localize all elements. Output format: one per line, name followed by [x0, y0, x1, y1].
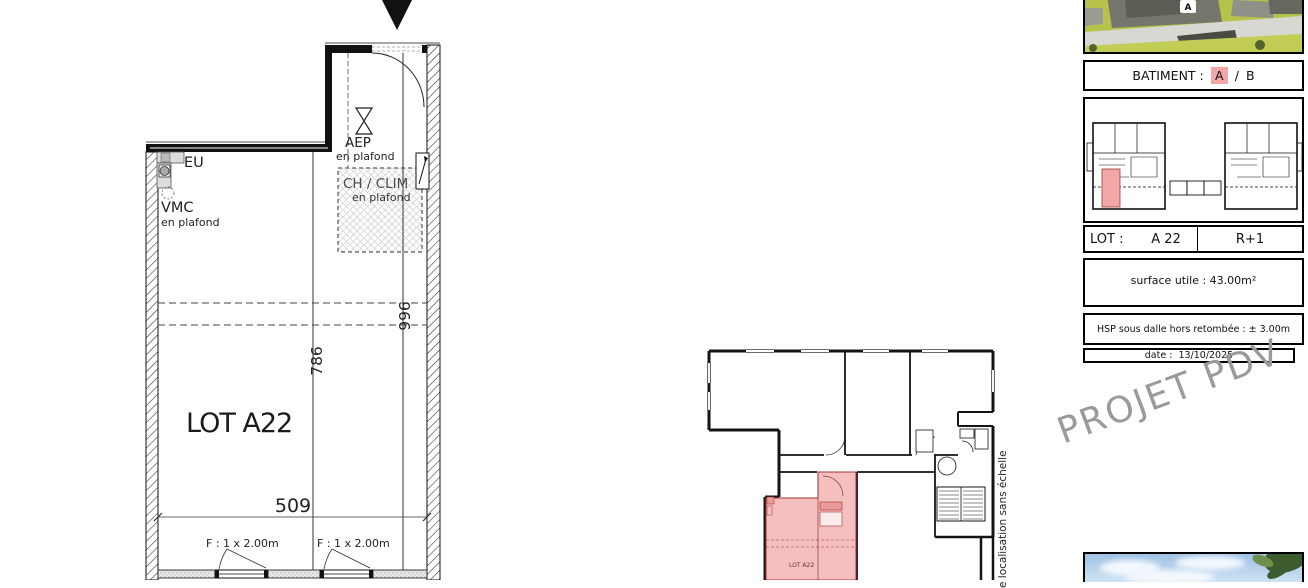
- entry-door-arc: [372, 53, 424, 107]
- batiment-row: BATIMENT : A / B: [1083, 60, 1304, 91]
- window-label-2: F : 1 x 2.00m: [317, 537, 390, 550]
- hsp-text: HSP sous dalle hors retombée : ± 3.00m: [1097, 324, 1290, 335]
- batiment-separator: /: [1235, 68, 1239, 83]
- chclim-label: CH / CLIM: [343, 176, 408, 192]
- dim-996: 996: [396, 301, 414, 331]
- staircase: [937, 487, 985, 521]
- bathroom-fixtures: [916, 429, 988, 452]
- window-label-1: F : 1 x 2.00m: [206, 537, 279, 550]
- north-arrow-icon: [382, 0, 412, 30]
- vent-symbol-icon: [416, 153, 429, 189]
- key-plan-box: [1083, 97, 1304, 223]
- photo-box: [1083, 552, 1304, 582]
- lot-title: LOT A22: [186, 408, 292, 439]
- aerial-render-image: A: [1085, 0, 1302, 52]
- main-floor-plan: EU VMC en plafond AEP en plafond CH / CL…: [0, 0, 460, 580]
- aep-label: AEP: [345, 135, 371, 151]
- batiment-a-badge: A: [1211, 67, 1228, 84]
- cloud-shape: [1175, 556, 1245, 570]
- key-plan-thumbnail: [1085, 99, 1302, 221]
- surface-row: surface utile : 43.00m²: [1083, 258, 1304, 307]
- lot-row: LOT : A 22 R+1: [1083, 225, 1304, 253]
- batiment-b: B: [1246, 68, 1255, 83]
- round-fixture: [938, 457, 956, 475]
- dim-786: 786: [308, 346, 326, 376]
- render-building-badge: A: [1185, 3, 1192, 13]
- vmc-label: VMC: [161, 200, 194, 216]
- mini-lot-label: LOT A22: [789, 562, 814, 569]
- aep-symbol-icon: [356, 108, 372, 134]
- location-floor-plan: LOT A22: [690, 340, 1020, 580]
- aerial-render-box: A: [1083, 0, 1304, 54]
- vmc-sub-label: en plafond: [161, 216, 220, 229]
- hsp-row: HSP sous dalle hors retombée : ± 3.00m: [1083, 313, 1304, 345]
- surface-text: surface utile : 43.00m²: [1131, 274, 1257, 287]
- cloud-shape: [1125, 570, 1215, 582]
- date-value: 13/10/2025: [1178, 350, 1233, 361]
- dim-509: 509: [275, 495, 311, 517]
- key-plan-highlighted-lot: [1102, 169, 1120, 207]
- window-marks: [705, 347, 997, 410]
- aep-sub-label: en plafond: [336, 150, 395, 163]
- level-value: R+1: [1198, 227, 1302, 251]
- lot-value: A 22: [1135, 227, 1197, 251]
- date-row: date : 13/10/2025: [1083, 348, 1295, 363]
- eu-label: EU: [184, 155, 204, 171]
- lot-label: LOT :: [1085, 227, 1135, 251]
- right-wall: [427, 45, 440, 580]
- batiment-label: BATIMENT :: [1132, 68, 1203, 83]
- eu-fixture: [157, 152, 184, 199]
- left-wall: [146, 152, 158, 580]
- location-plan-note: e localisation sans échelle: [997, 393, 1009, 588]
- chclim-sub-label: en plafond: [352, 191, 411, 204]
- date-label: date :: [1145, 350, 1173, 361]
